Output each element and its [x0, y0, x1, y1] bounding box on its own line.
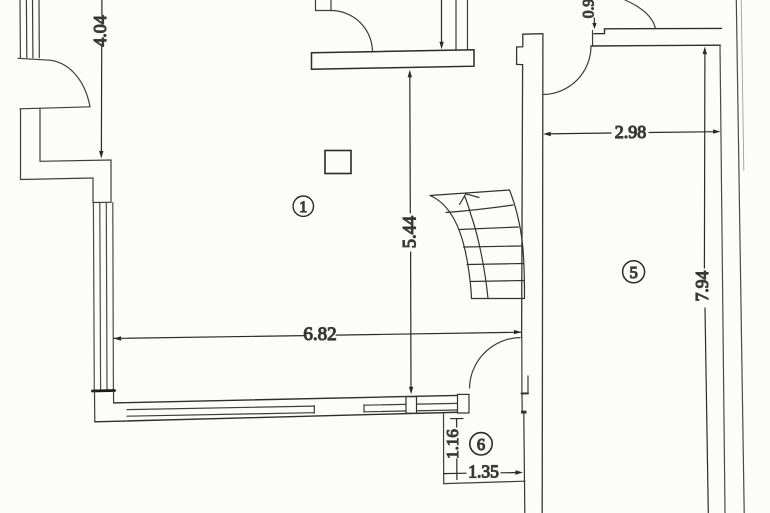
svg-text:2.98: 2.98 — [615, 122, 647, 142]
svg-text:0.9: 0.9 — [581, 0, 598, 18]
svg-text:6: 6 — [477, 435, 485, 454]
svg-text:7.94: 7.94 — [692, 270, 712, 301]
svg-text:1: 1 — [299, 199, 307, 216]
svg-text:6.82: 6.82 — [303, 324, 336, 345]
svg-text:5: 5 — [629, 263, 637, 282]
svg-text:1.16: 1.16 — [443, 429, 462, 459]
svg-text:5.44: 5.44 — [400, 216, 420, 248]
svg-text:1.35: 1.35 — [468, 461, 499, 481]
svg-text:4.04: 4.04 — [90, 15, 110, 47]
